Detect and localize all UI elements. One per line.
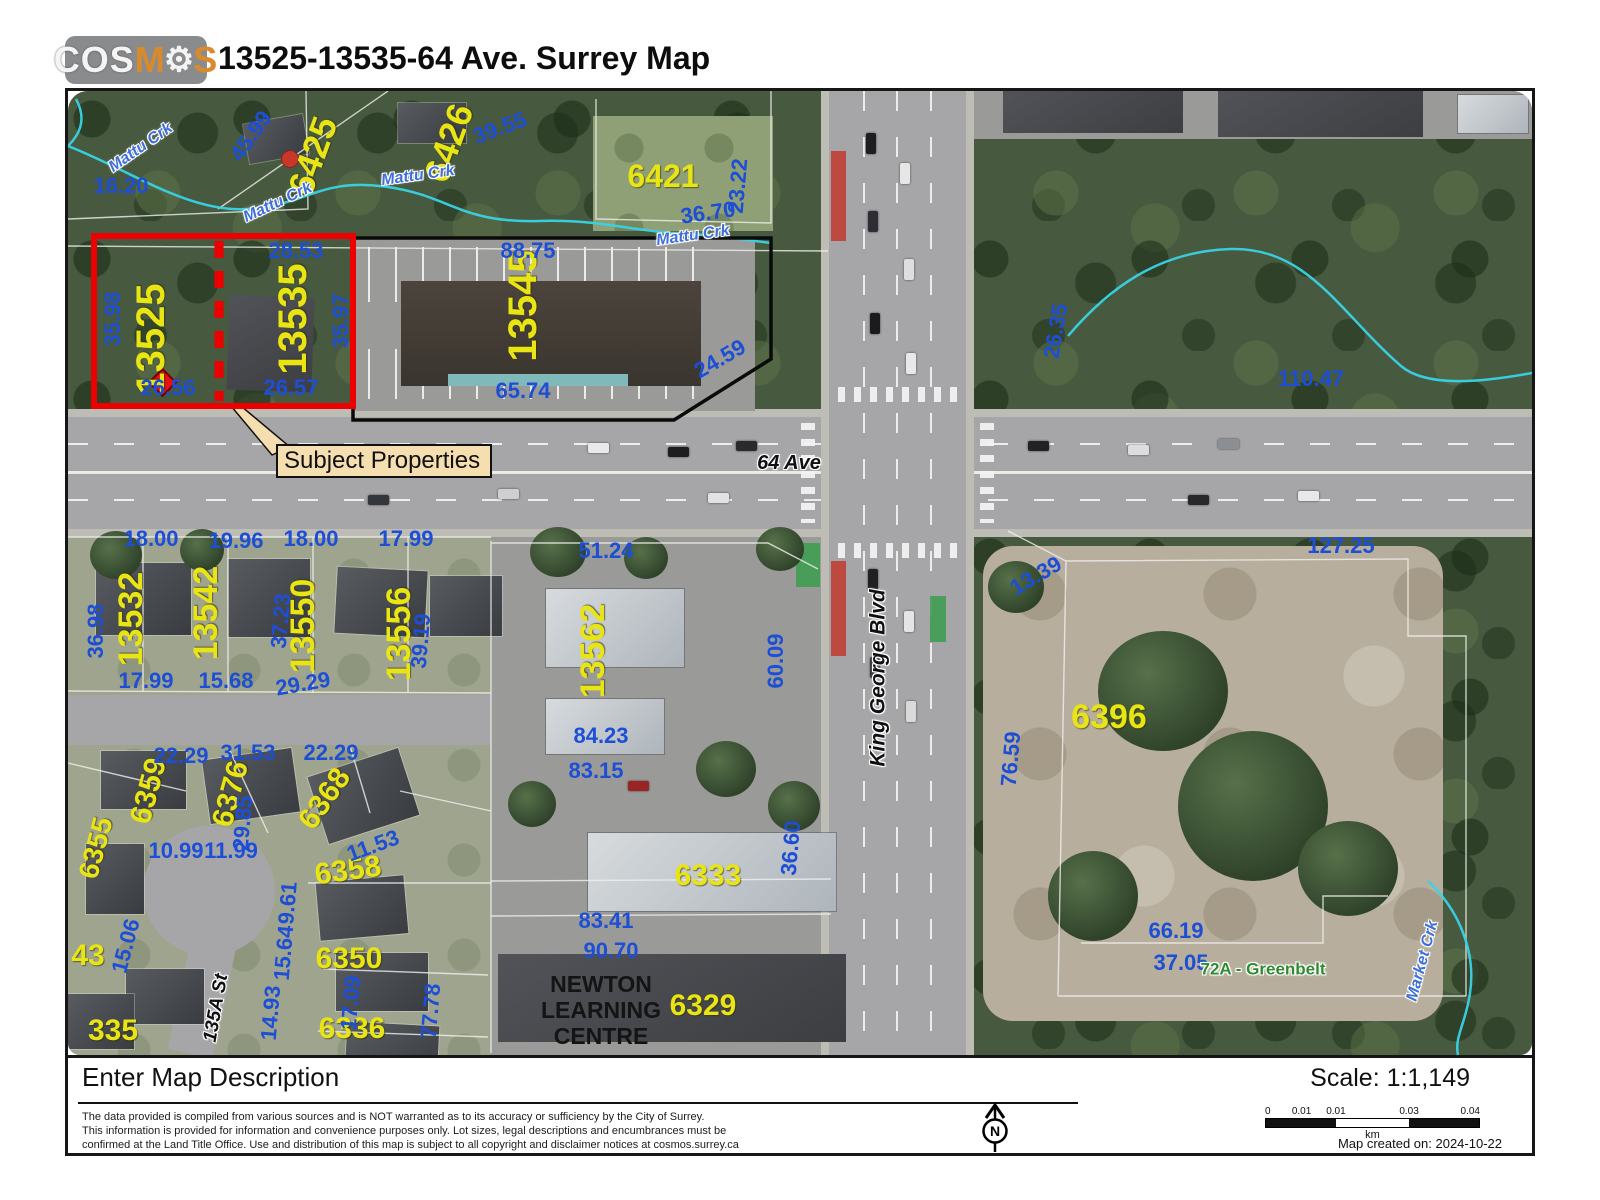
logo-letter: M xyxy=(135,39,166,81)
map-sheet: 6425642664211352513535135451353213542135… xyxy=(65,88,1535,1156)
svg-text:N: N xyxy=(990,1123,1000,1139)
disclaimer-line: This information is provided for informa… xyxy=(82,1124,739,1138)
scale-tick: 0.04 xyxy=(1461,1106,1480,1117)
map-label-6355: 6355 xyxy=(74,814,117,881)
map-label-13542: 13542 xyxy=(189,566,223,661)
map-footer: Enter Map Description The data provided … xyxy=(68,1055,1532,1153)
map-label-66-19: 66.19 xyxy=(1148,920,1203,942)
map-label-43: 43 xyxy=(71,941,104,971)
newton-label-line: NEWTON xyxy=(501,971,701,997)
map-label-13535: 13535 xyxy=(273,263,313,374)
newton-label-line: CENTRE xyxy=(501,1023,701,1049)
map-label-16-20: 16.20 xyxy=(93,175,148,197)
map-label-24-59: 24.59 xyxy=(691,336,750,383)
map-label-35-97: 35.97 xyxy=(330,293,352,348)
map-label-22-29: 22.29 xyxy=(153,745,208,767)
map-label-15-06: 15.06 xyxy=(108,917,144,976)
map-label-6421: 6421 xyxy=(627,160,698,192)
map-label-15-68: 15.68 xyxy=(198,670,253,692)
map-label-83-41: 83.41 xyxy=(578,910,633,932)
map-label-11-99: 11.99 xyxy=(204,840,258,862)
map-label-6368: 6368 xyxy=(294,763,357,835)
map-label-13562: 13562 xyxy=(576,604,610,699)
logo-letter: ⚙ xyxy=(164,40,195,80)
map-label-mattu-crk: Mattu Crk xyxy=(241,180,315,226)
map-label-13545: 13545 xyxy=(503,250,543,361)
map-label-mattu-crk: Mattu Crk xyxy=(655,223,730,249)
map-label-83-15: 83.15 xyxy=(568,760,623,782)
disclaimer-line: confirmed at the Land Title Office. Use … xyxy=(82,1138,739,1152)
map-label-6333: 6333 xyxy=(675,861,742,891)
scale-tick: 0.01 xyxy=(1292,1106,1311,1117)
map-description-field[interactable]: Enter Map Description xyxy=(82,1062,339,1093)
map-label-17-09: 17.09 xyxy=(338,975,365,1032)
map-label-market-crk: Market Crk xyxy=(1405,919,1442,1003)
description-underline xyxy=(78,1102,1078,1104)
map-label-84-23: 84.23 xyxy=(573,725,628,747)
scale-tick: 0.01 xyxy=(1326,1106,1345,1117)
map-label-layer: 6425642664211352513535135451353213542135… xyxy=(68,91,1532,1055)
map-label-60-09: 60.09 xyxy=(765,633,787,688)
map-created-date: Map created on: 2024-10-22 xyxy=(1338,1136,1502,1151)
north-arrow-icon: N xyxy=(973,1102,1017,1154)
map-label-10-99: 10.99 xyxy=(148,840,203,862)
map-label-37-23: 37.23 xyxy=(268,593,295,650)
map-label-18-00: 18.00 xyxy=(283,528,338,550)
page-title: 13525-13535-64 Ave. Surrey Map xyxy=(218,40,710,77)
logo-letter: S xyxy=(193,39,218,81)
map-label-110-47: 110.47 xyxy=(1278,368,1344,390)
map-label-64-ave: 64 Ave xyxy=(757,453,821,473)
scale-label: Scale: 1:1,149 xyxy=(1310,1064,1470,1093)
map-label-26-57: 26.57 xyxy=(263,377,318,399)
map-label-14-93: 14.93 xyxy=(258,985,285,1042)
map-sheet-page: COSM⚙S 13525-13535-64 Ave. Surrey Map xyxy=(0,0,1600,1200)
map-label-king-george-blvd: King George Blvd xyxy=(868,589,889,766)
map-label-18-00: 18.00 xyxy=(123,528,178,550)
scale-tick: 0.03 xyxy=(1399,1106,1418,1117)
subject-properties-callout-label: Subject Properties xyxy=(284,447,480,475)
newton-learning-centre-label: NEWTONLEARNINGCENTRE xyxy=(501,971,701,1049)
map-label-36-98: 36.98 xyxy=(85,603,107,658)
map-label-35-98: 35.98 xyxy=(102,291,124,346)
newton-label-line: LEARNING xyxy=(501,997,701,1023)
scale-bar-segments xyxy=(1265,1118,1480,1128)
map-label-45-99: 45.99 xyxy=(226,107,276,165)
disclaimer-text: The data provided is compiled from vario… xyxy=(82,1110,739,1152)
map-label-6350: 6350 xyxy=(316,944,383,974)
map-label-88-75: 88.75 xyxy=(500,240,555,262)
logo-letter: COS xyxy=(54,39,135,81)
map-label-72a-greenbelt: 72A - Greenbelt xyxy=(1200,961,1325,978)
map-label-26-35: 26.35 xyxy=(1040,302,1071,360)
map-label-36-60: 36.60 xyxy=(778,820,805,877)
map-label-90-70: 90.70 xyxy=(583,940,638,962)
map-label-15-64: 15.64 xyxy=(271,925,298,982)
map-label-29-29: 29.29 xyxy=(274,668,332,699)
map-label-76-59: 76.59 xyxy=(998,731,1025,788)
map-label-19-96: 19.96 xyxy=(208,530,263,552)
map-label-13532: 13532 xyxy=(114,572,148,667)
map-label-127-25: 127.25 xyxy=(1307,535,1374,557)
map-label-77-78: 77.78 xyxy=(418,983,445,1040)
map-label-26-56: 26.56 xyxy=(140,377,195,399)
map-label-335: 335 xyxy=(88,1016,138,1046)
map-label-17-99: 17.99 xyxy=(118,670,173,692)
scale-tick: 0 xyxy=(1265,1106,1271,1117)
disclaimer-line: The data provided is compiled from vario… xyxy=(82,1110,739,1124)
map-label-9-61: 9.61 xyxy=(275,881,301,926)
map-label-39-19: 39.19 xyxy=(408,613,435,670)
scale-bar-ticks: 00.010.010.030.04 xyxy=(1265,1106,1480,1118)
map-label-22-29: 22.29 xyxy=(303,742,358,764)
aerial-map: 6425642664211352513535135451353213542135… xyxy=(68,91,1532,1055)
map-label-17-99: 17.99 xyxy=(378,528,433,550)
map-label-28-53: 28.53 xyxy=(268,240,323,262)
map-label-31-53: 31.53 xyxy=(220,742,275,764)
map-label-65-74: 65.74 xyxy=(495,380,550,402)
map-label-6396: 6396 xyxy=(1071,700,1147,734)
cosmos-logo: COSM⚙S xyxy=(65,36,207,84)
map-label-51-24: 51.24 xyxy=(578,540,633,562)
map-label-13-39: 13.39 xyxy=(1007,553,1066,600)
map-label-135a-st: 135A St xyxy=(201,972,232,1043)
map-label-mattu-crk: Mattu Crk xyxy=(106,120,176,175)
map-label-mattu-crk: Mattu Crk xyxy=(380,163,455,189)
